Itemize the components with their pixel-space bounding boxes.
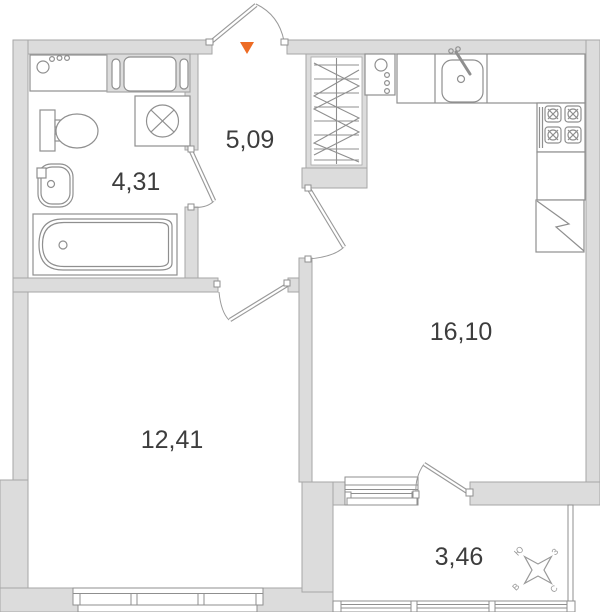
- wardrobe: [306, 54, 367, 168]
- refrigerator: [536, 200, 584, 252]
- wall-interior-vertical: [299, 258, 312, 482]
- washing-machine: [30, 55, 107, 91]
- bedroom-area-label: 12,41: [141, 426, 204, 454]
- balcony-glazing-right: [568, 505, 573, 601]
- kitchen-living-area-label: 16,10: [430, 318, 493, 346]
- floor-plan: 4,31 5,09 16,10 12,41 3,46 Ю З В С: [0, 0, 600, 612]
- wash-basin: [37, 164, 73, 207]
- floor-plan-canvas: 4,31 5,09 16,10 12,41 3,46 Ю З В С: [0, 0, 600, 612]
- wall-left: [13, 40, 28, 480]
- kitchen-counter: [397, 47, 585, 103]
- bedroom-door: [214, 280, 290, 320]
- wall-kitchen-entry-stub: [302, 168, 367, 188]
- toilet: [40, 110, 98, 151]
- compass-star-icon: [525, 557, 552, 584]
- wall-top-left: [13, 40, 212, 54]
- gas-stove: [537, 103, 585, 152]
- bathroom-area-label: 4,31: [112, 168, 161, 196]
- water-heater: [365, 54, 395, 95]
- bathroom-door: [188, 146, 214, 210]
- balcony-glazing-bottom: [333, 601, 575, 612]
- bathtub: [33, 214, 177, 275]
- entrance-door: [206, 4, 288, 54]
- hallway-area-label: 5,09: [226, 126, 275, 154]
- wall-balcony-left: [302, 482, 333, 592]
- wall-bathroom-right-lower: [185, 207, 198, 278]
- window-sill: [347, 498, 417, 505]
- bathroom-fixtures: [30, 54, 190, 275]
- wall-balcony-left-of-window: [333, 482, 345, 505]
- entrance-marker-icon: [240, 42, 254, 54]
- kitchen-door: [305, 185, 344, 262]
- compass-rose: Ю З В С: [510, 544, 560, 595]
- balcony-door: [413, 464, 473, 498]
- wall-above-balcony: [470, 482, 600, 505]
- wall-bathroom-bottom: [13, 278, 218, 292]
- wall-top-right: [287, 40, 586, 54]
- kitchen-cabinet: [537, 152, 585, 200]
- wall-right: [586, 40, 600, 505]
- compass-west-label: З: [549, 546, 560, 557]
- compass-north-label: С: [548, 583, 560, 595]
- balcony-window: [345, 477, 418, 505]
- window-sill: [78, 605, 257, 612]
- balcony-area-label: 3,46: [435, 543, 484, 571]
- ventilation-shaft: [107, 54, 190, 92]
- compass-east-label: В: [510, 581, 521, 592]
- extractor-fan: [135, 96, 190, 146]
- bedroom-window: [73, 588, 263, 612]
